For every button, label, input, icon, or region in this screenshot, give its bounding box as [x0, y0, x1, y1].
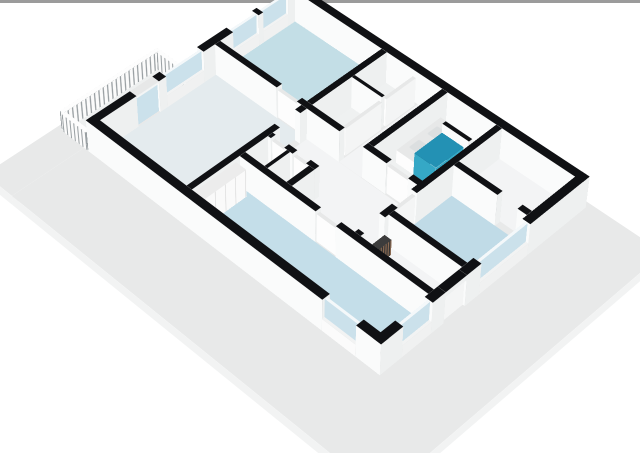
- floorplan-canvas[interactable]: [0, 0, 640, 453]
